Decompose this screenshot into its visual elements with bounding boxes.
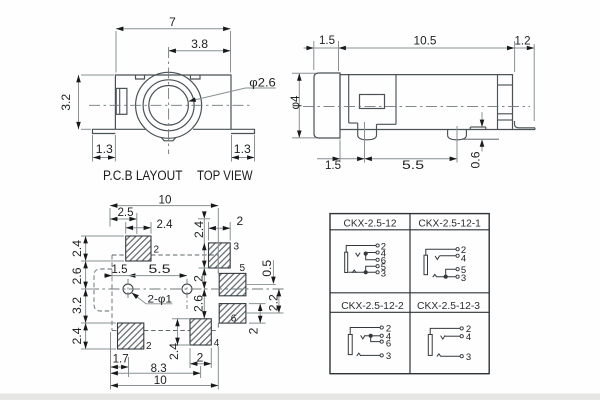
svg-text:CKX-2.5-12-1: CKX-2.5-12-1 [418, 218, 481, 229]
svg-text:10: 10 [154, 373, 167, 387]
svg-text:2.6: 2.6 [192, 295, 206, 312]
svg-text:1.5: 1.5 [112, 262, 128, 276]
svg-text:4: 4 [461, 253, 466, 264]
svg-text:3.8: 3.8 [191, 37, 208, 51]
svg-text:2.4: 2.4 [192, 221, 206, 238]
svg-text:2: 2 [197, 350, 204, 364]
svg-text:5.5: 5.5 [149, 262, 171, 276]
svg-text:3: 3 [386, 351, 391, 362]
svg-text:3.2: 3.2 [70, 297, 84, 314]
svg-text:2: 2 [247, 327, 261, 334]
svg-text:7: 7 [169, 15, 176, 29]
svg-text:3.2: 3.2 [59, 93, 73, 110]
svg-text:φ2.6: φ2.6 [249, 76, 276, 90]
svg-text:3: 3 [381, 269, 386, 280]
svg-text:2-φ1: 2-φ1 [148, 294, 173, 306]
svg-text:1.2: 1.2 [515, 34, 531, 48]
svg-text:1.5: 1.5 [319, 33, 335, 47]
svg-text:2.4: 2.4 [167, 343, 181, 360]
svg-text:1.5: 1.5 [325, 158, 341, 172]
svg-text:1.3: 1.3 [96, 142, 113, 156]
svg-text:5.5: 5.5 [402, 158, 424, 172]
svg-text:1.3: 1.3 [234, 142, 251, 156]
svg-text:0.6: 0.6 [469, 151, 483, 168]
svg-text:2: 2 [192, 275, 206, 282]
svg-text:6: 6 [231, 314, 237, 325]
svg-text:3: 3 [461, 273, 466, 284]
svg-text:4: 4 [466, 332, 471, 343]
svg-text:2.4: 2.4 [70, 327, 84, 344]
svg-text:5: 5 [240, 263, 246, 274]
svg-text:4: 4 [214, 338, 220, 349]
svg-text:10: 10 [159, 192, 172, 206]
svg-text:2.4: 2.4 [70, 240, 84, 257]
svg-text:P.C.B LAYOUT: P.C.B LAYOUT [103, 168, 183, 183]
svg-text:10.5: 10.5 [414, 34, 437, 48]
svg-text:2: 2 [154, 245, 160, 256]
svg-text:2.6: 2.6 [70, 267, 84, 284]
svg-text:2.4: 2.4 [157, 217, 173, 231]
svg-text:2: 2 [237, 214, 244, 228]
svg-text:3: 3 [466, 352, 471, 363]
svg-text:1.7: 1.7 [113, 352, 129, 366]
svg-text:TOP VIEW: TOP VIEW [197, 168, 253, 183]
svg-text:CKX-2.5-12-3: CKX-2.5-12-3 [417, 301, 480, 312]
svg-text:2.5: 2.5 [118, 205, 134, 219]
svg-text:6: 6 [386, 339, 391, 350]
svg-text:2: 2 [146, 341, 152, 352]
svg-text:0.5: 0.5 [260, 259, 274, 276]
svg-text:φ4: φ4 [288, 95, 302, 109]
svg-text:CKX-2.5-12-2: CKX-2.5-12-2 [341, 301, 404, 312]
svg-text:2.2: 2.2 [266, 294, 280, 311]
svg-text:CKX-2.5-12: CKX-2.5-12 [344, 218, 397, 229]
svg-text:3: 3 [234, 242, 240, 253]
